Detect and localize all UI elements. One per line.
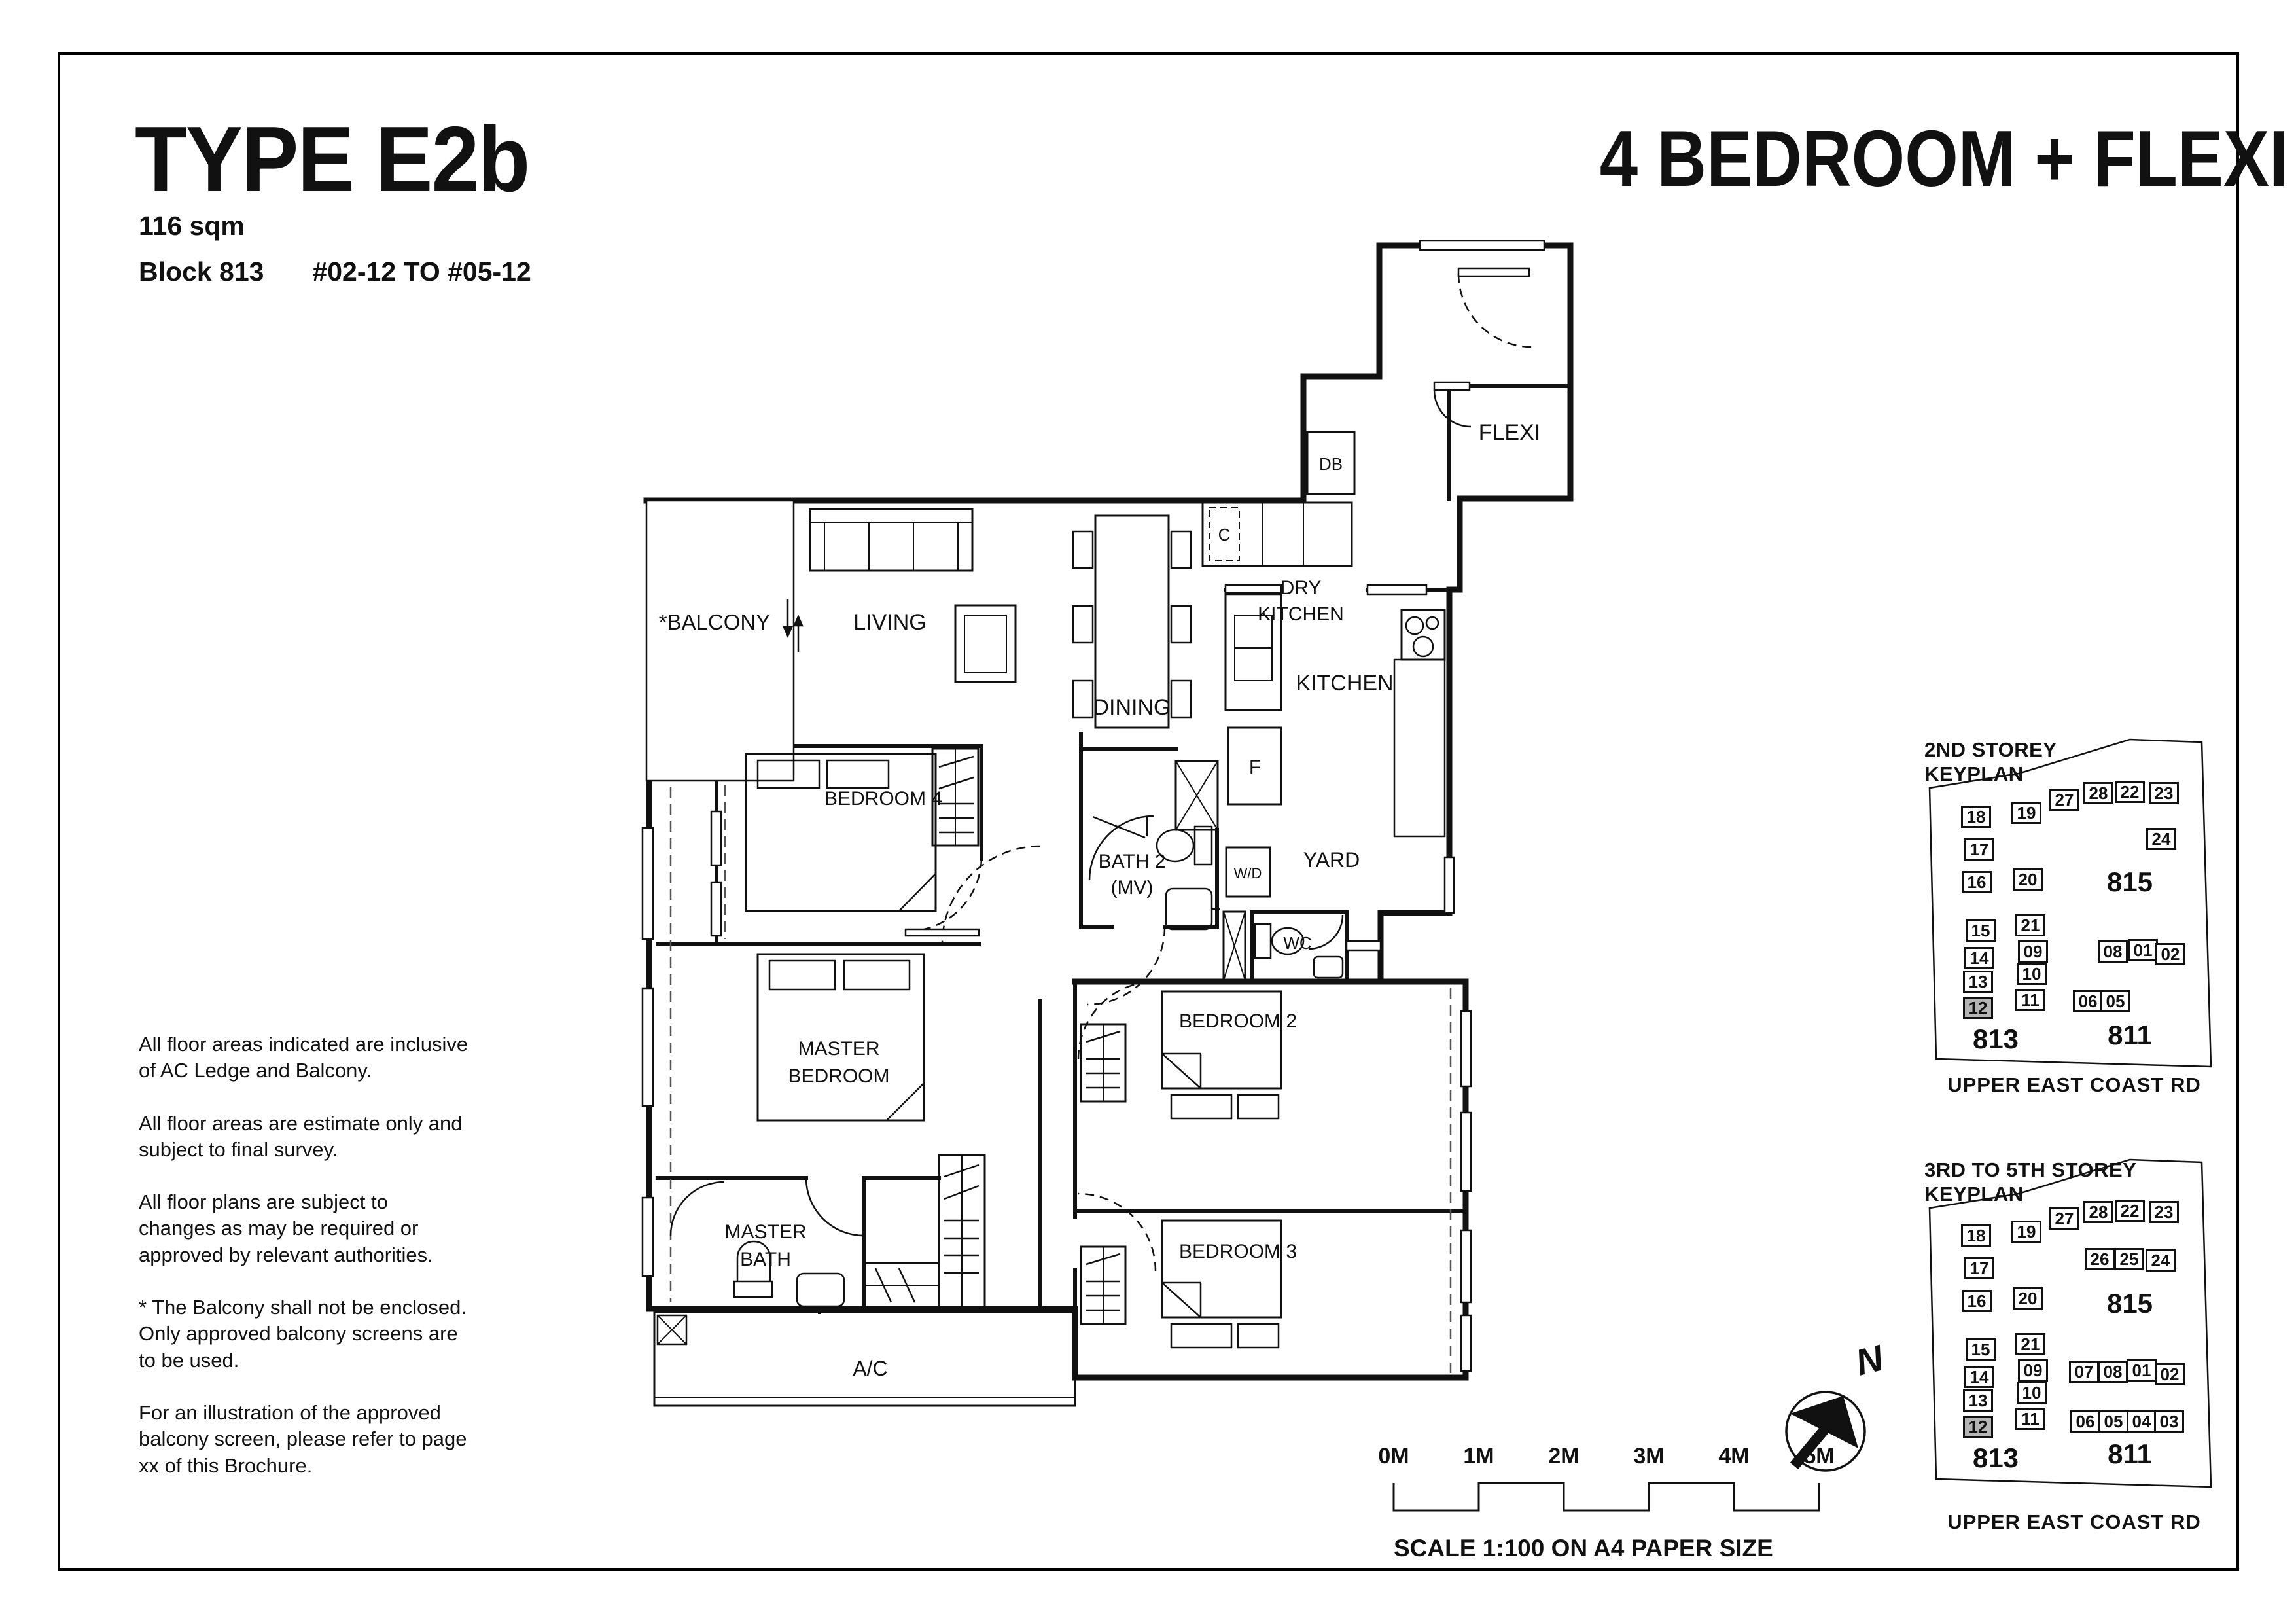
keyplan-unit-08: 08	[2098, 940, 2128, 963]
keyplan-block-815: 815	[2107, 866, 2153, 898]
keyplan-unit-24: 24	[2146, 1249, 2176, 1272]
block-stack-line: Block 813#02-12 TO #05-12	[139, 257, 531, 287]
note-paragraph: All floor areas indicated are inclusive …	[139, 1031, 469, 1084]
keyplan-block-813: 813	[1973, 1024, 2019, 1055]
keyplan-unit-12: 12	[1963, 997, 1993, 1019]
north-stem	[1794, 1430, 1824, 1466]
keyplan-unit-22: 22	[2115, 781, 2145, 803]
sink	[797, 1274, 844, 1306]
label-bath2: BATH 2	[1099, 851, 1166, 872]
keyplan-unit-15: 15	[1966, 1338, 1996, 1361]
label-master-bath: MASTER	[724, 1221, 806, 1243]
keyplan-title-line1: 2ND STOREY	[1924, 738, 2057, 762]
keyplan-unit-10: 10	[2017, 963, 2047, 985]
keyplan-unit-01: 01	[2128, 939, 2158, 961]
keyplan-unit-09: 09	[2018, 940, 2048, 963]
keyplan-unit-11: 11	[2015, 1408, 2045, 1430]
keyplan-unit-01: 01	[2127, 1359, 2157, 1382]
keyplan-unit-19: 19	[2011, 1221, 2041, 1243]
door-swings	[907, 274, 1532, 1271]
label-c: C	[1218, 525, 1231, 544]
bed-bedroom3	[1162, 1221, 1281, 1347]
road-label: UPPER EAST COAST RD	[1920, 1510, 2228, 1534]
keyplan-unit-09: 09	[2018, 1359, 2048, 1382]
keyplan-unit-20: 20	[2013, 868, 2043, 891]
label-wc: WC	[1283, 933, 1311, 953]
keyplan-unit-27: 27	[2049, 1207, 2079, 1230]
keyplan-unit-21: 21	[2015, 1333, 2045, 1355]
scale-tick: 2M	[1548, 1444, 1579, 1469]
keyplan-unit-14: 14	[1964, 947, 1994, 969]
keyplan-block-811: 811	[2108, 1438, 2152, 1470]
floor-plan: FLEXI DRY KITCHEN DB C *BALCONY LIVING D…	[609, 236, 1583, 1433]
keyplan-unit-13: 13	[1963, 1389, 1993, 1412]
bed-master	[758, 954, 924, 1120]
keyplan-unit-05: 05	[2098, 1410, 2128, 1433]
page-title: TYPE E2b	[135, 106, 529, 213]
scale-tick: 3M	[1633, 1444, 1664, 1469]
keyplan-unit-25: 25	[2114, 1248, 2144, 1270]
unit-area: 116 sqm	[139, 211, 245, 241]
keyplan-unit-18: 18	[1961, 806, 1991, 828]
keyplan-unit-12: 12	[1963, 1416, 1993, 1438]
label-bedroom3: BEDROOM 3	[1179, 1241, 1297, 1262]
keyplan-unit-21: 21	[2015, 914, 2045, 936]
plan-type-title: 4 BEDROOM + FLEXI	[1600, 113, 2202, 204]
label-dry-kitchen: KITCHEN	[1258, 603, 1344, 625]
keyplan-unit-28: 28	[2083, 782, 2113, 804]
block-number: Block 813	[139, 257, 264, 287]
sofa	[810, 509, 972, 571]
sink	[1314, 957, 1343, 978]
scale-tick: 4M	[1718, 1444, 1749, 1469]
keyplan-unit-27: 27	[2049, 789, 2079, 811]
keyplan-unit-19: 19	[2011, 802, 2041, 824]
keyplan-block-815: 815	[2107, 1288, 2153, 1319]
keyplan-unit-26: 26	[2085, 1248, 2115, 1270]
label-living: LIVING	[853, 610, 926, 635]
label-db: DB	[1319, 454, 1343, 474]
road-label: UPPER EAST COAST RD	[1920, 1073, 2228, 1097]
label-bath2-mv: (MV)	[1111, 877, 1154, 899]
keyplan-unit-06: 06	[2073, 990, 2103, 1012]
brochure-page: TYPE E2b 116 sqm Block 813#02-12 TO #05-…	[0, 0, 2296, 1623]
scale-caption: SCALE 1:100 ON A4 PAPER SIZE	[1394, 1535, 1773, 1561]
tv-console	[955, 605, 1016, 682]
label-master-bedroom: MASTER	[798, 1038, 879, 1060]
note-paragraph: All floor areas are estimate only and su…	[139, 1111, 469, 1164]
keyplan-unit-18: 18	[1961, 1224, 1991, 1247]
keyplan-unit-28: 28	[2083, 1201, 2113, 1223]
sink	[1166, 889, 1212, 929]
disclaimer-notes: All floor areas indicated are inclusive …	[139, 1031, 469, 1505]
keyplan-unit-11: 11	[2015, 989, 2045, 1011]
label-bedroom4: BEDROOM 4	[824, 788, 942, 810]
north-arrowhead	[1790, 1396, 1858, 1448]
doors	[671, 268, 1529, 1236]
keyplan-unit-17: 17	[1964, 838, 1994, 861]
label-master-bedroom: BEDROOM	[788, 1065, 889, 1087]
keyplan-unit-02: 02	[2155, 943, 2185, 965]
keyplan-title: 3RD TO 5TH STOREY KEYPLAN	[1924, 1158, 2136, 1206]
note-paragraph: For an illustration of the approved balc…	[139, 1400, 469, 1479]
keyplan-2nd-storey: 2ND STOREY KEYPLAN UPPER EAST COAST RD 1…	[1920, 732, 2228, 1124]
wardrobes	[864, 749, 1125, 1324]
north-label: N	[1852, 1336, 1888, 1383]
toilet-tank	[1195, 827, 1212, 865]
keyplan-block-811: 811	[2108, 1020, 2152, 1051]
toilet-tank	[1255, 924, 1271, 958]
scale-tick: 0M	[1378, 1444, 1409, 1469]
keyplan-unit-06: 06	[2070, 1410, 2100, 1433]
keyplan-unit-22: 22	[2115, 1200, 2145, 1222]
keyplan-title-line1: 3RD TO 5TH STOREY	[1924, 1158, 2136, 1183]
keyplan-unit-23: 23	[2149, 1201, 2179, 1223]
label-bedroom2: BEDROOM 2	[1179, 1010, 1297, 1032]
label-dry-kitchen: DRY	[1280, 577, 1322, 599]
keyplan-block-813: 813	[1973, 1442, 2019, 1474]
label-master-bath: BATH	[740, 1249, 791, 1270]
keyplan-unit-14: 14	[1964, 1366, 1994, 1388]
keyplan-title-line2: KEYPLAN	[1924, 762, 2057, 787]
keyplan-title: 2ND STOREY KEYPLAN	[1924, 738, 2057, 786]
kitchen-counter	[1394, 660, 1445, 836]
stack-range: #02-12 TO #05-12	[312, 257, 531, 287]
keyplan-unit-07: 07	[2069, 1361, 2099, 1383]
balcony-parapet	[646, 501, 794, 781]
keyplan-unit-16: 16	[1962, 871, 1992, 893]
keyplan-unit-23: 23	[2149, 782, 2179, 804]
note-paragraph: * The Balcony shall not be enclosed. Onl…	[139, 1294, 469, 1374]
hob	[1402, 610, 1445, 660]
keyplan-unit-02: 02	[2155, 1363, 2185, 1385]
label-dining: DINING	[1093, 695, 1171, 720]
keyplan-unit-17: 17	[1964, 1257, 1994, 1279]
label-flexi: FLEXI	[1479, 420, 1540, 445]
label-fridge: F	[1249, 757, 1261, 778]
keyplan-unit-05: 05	[2100, 990, 2130, 1012]
label-washer-dryer: W/D	[1234, 865, 1262, 882]
outer-walls	[646, 245, 1570, 1378]
wardrobe-bed3	[1081, 1247, 1125, 1324]
toilet-tank	[734, 1281, 772, 1297]
windows	[643, 241, 1544, 1371]
keyplan-unit-04: 04	[2127, 1410, 2157, 1433]
keyplan-unit-15: 15	[1966, 919, 1996, 942]
label-yard: YARD	[1303, 848, 1360, 872]
keyplan-unit-10: 10	[2017, 1382, 2047, 1404]
label-kitchen: KITCHEN	[1296, 671, 1393, 696]
label-balcony: *BALCONY	[659, 610, 771, 634]
keyplan-unit-16: 16	[1962, 1290, 1992, 1312]
north-arrow: N	[1760, 1329, 1930, 1505]
keyplan-unit-24: 24	[2146, 828, 2176, 850]
keyplan-unit-08: 08	[2098, 1361, 2128, 1383]
wardrobe-bed2	[1081, 1024, 1125, 1101]
scale-tick: 1M	[1463, 1444, 1494, 1469]
keyplan-unit-03: 03	[2154, 1410, 2184, 1433]
keyplan-unit-20: 20	[2013, 1287, 2043, 1310]
label-ac: A/C	[853, 1357, 887, 1380]
keyplan-unit-13: 13	[1963, 971, 1993, 993]
note-paragraph: All floor plans are subject to changes a…	[139, 1189, 469, 1268]
keyplan-3rd-5th-storey: 3RD TO 5TH STOREY KEYPLAN UPPER EAST COA…	[1920, 1152, 2228, 1544]
scale-bar-line	[1394, 1483, 1819, 1510]
